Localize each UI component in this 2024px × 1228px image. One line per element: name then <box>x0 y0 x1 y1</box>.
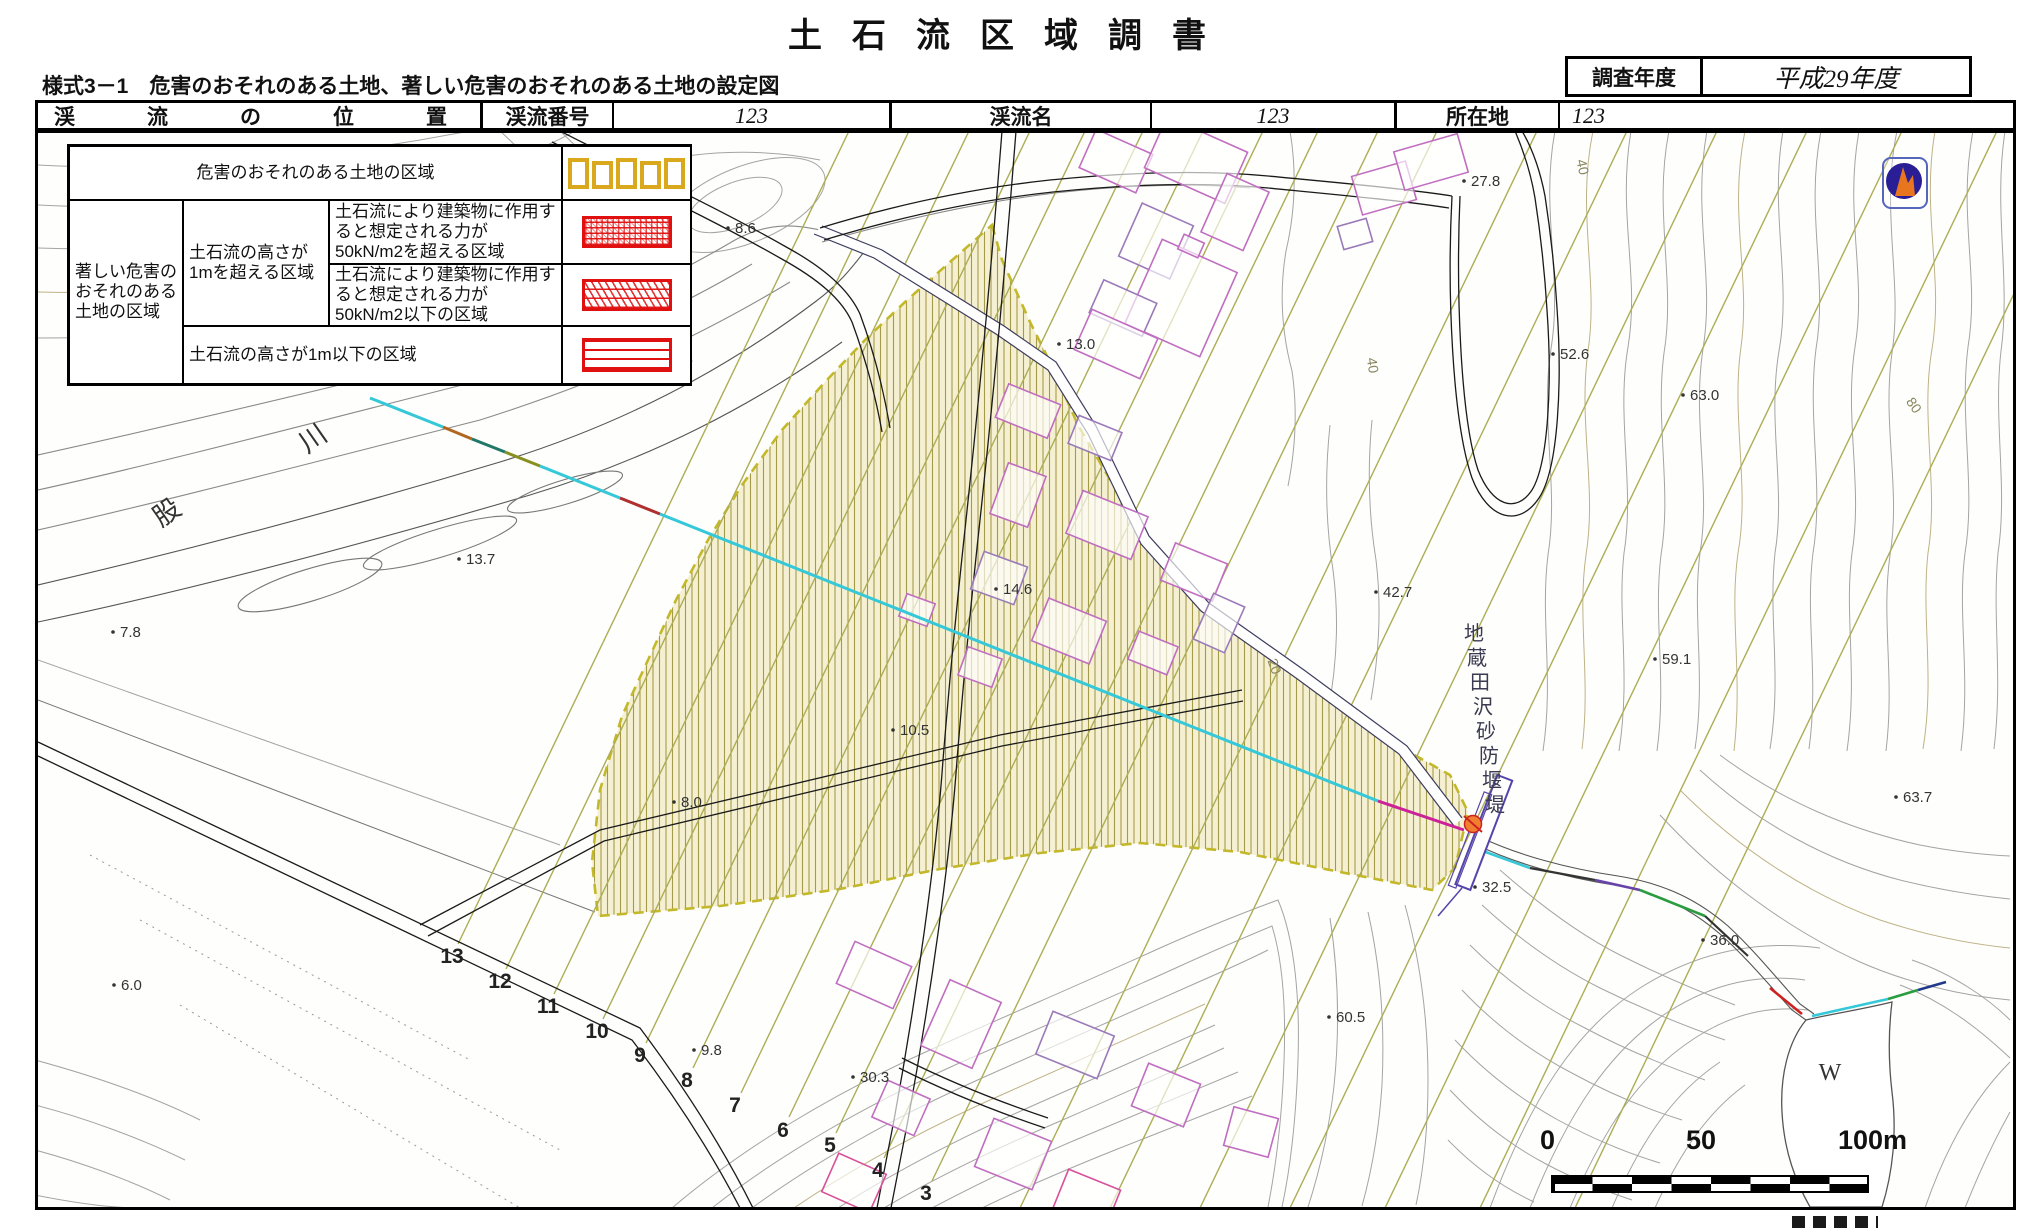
section-number-label: 8 <box>681 1069 693 1092</box>
scale-label-50: 50 <box>1686 1125 1716 1156</box>
location-value: 123 <box>1560 103 2013 128</box>
legend-over-50kn-label: 土石流により建築物に作用すると想定される力が50kN/m2を超える区域 <box>329 200 562 264</box>
dam-name-label: 砂 <box>1476 720 1496 743</box>
legend-over-1m-label: 土石流の高さが1mを超える区域 <box>183 200 329 326</box>
section-number-label: 6 <box>777 1119 789 1142</box>
legend-under-1m-swatch <box>562 326 691 384</box>
spot-elevation-label: 60.5 <box>1336 1009 1365 1026</box>
form-note: 様式3－1 危害のおそれのある土地、著しい危害のおそれのある土地の設定図 <box>42 70 779 100</box>
north-arrow-icon <box>1882 157 1928 209</box>
section-number-label: 9 <box>634 1044 646 1067</box>
survey-year-value: 平成29年度 <box>1703 59 1969 94</box>
spot-elevation-label: 32.5 <box>1482 879 1511 896</box>
clipped-footer-fragment <box>1792 1216 1878 1228</box>
legend-severe-hazard-label: 著しい危害のおそれのある土地の区域 <box>69 200 183 384</box>
section-number-label: 4 <box>872 1159 884 1182</box>
page-title: 土石流区域調書 <box>0 8 2024 57</box>
stream-no-label: 渓流番号 <box>483 103 614 128</box>
river-name-label: 川 <box>293 419 332 459</box>
pond <box>1782 982 1946 1207</box>
stream-position-label: 渓流の位置 <box>38 103 483 128</box>
spot-elevation-label: 36.0 <box>1710 932 1739 949</box>
outlet-stream <box>1477 838 1814 1020</box>
spot-elevation-label: 9.8 <box>701 1042 722 1059</box>
stream-name-value: 123 <box>1152 103 1397 128</box>
spot-elevation-label: 7.8 <box>120 624 141 641</box>
dam-name-label: 堤 <box>1485 794 1505 817</box>
spot-elevation-label: 8.0 <box>681 794 702 811</box>
contour-elevation-label: 80 <box>1903 394 1925 416</box>
dam-name-label: 田 <box>1470 672 1490 694</box>
section-number-label: 13 <box>440 945 463 968</box>
section-number-label: 7 <box>729 1094 741 1117</box>
survey-year-label: 調査年度 <box>1568 59 1703 94</box>
legend-under-1m-label: 土石流の高さが1m以下の区域 <box>183 326 562 384</box>
dam-name-label: 防 <box>1479 745 1499 768</box>
yellow-hatch-swatch-icon <box>568 158 685 189</box>
legend-over-50kn-swatch <box>562 200 691 264</box>
stream-info-table: 渓流の位置 渓流番号 123 渓流名 123 所在地 123 <box>35 100 2016 131</box>
survey-year-box: 調査年度 平成29年度 <box>1565 56 1972 97</box>
section-number-label: 10 <box>585 1020 608 1043</box>
section-number-label: 11 <box>537 995 560 1018</box>
spot-elevation-label: 30.3 <box>860 1069 889 1086</box>
dam-name-label: 蔵 <box>1467 647 1487 670</box>
red-diagonal-swatch-icon <box>582 279 672 311</box>
spot-elevation-label: 13.0 <box>1066 336 1095 353</box>
red-horizontal-swatch-icon <box>582 338 672 372</box>
contour-elevation-label: 40 <box>1364 356 1382 374</box>
dam-name-label: 堰 <box>1482 769 1502 792</box>
section-number-label: 5 <box>824 1134 836 1157</box>
section-number-label: 3 <box>920 1182 932 1205</box>
legend-hazard-label: 危害のおそれのある土地の区域 <box>69 146 562 200</box>
spot-elevation-label: 8.6 <box>735 220 756 237</box>
legend-under-50kn-label: 土石流により建築物に作用すると想定される力が50kN/m2以下の区域 <box>329 264 562 326</box>
dam-name-label: 地 <box>1464 622 1484 645</box>
spot-elevation-label: 59.1 <box>1662 651 1691 668</box>
spot-elevation-label: 52.6 <box>1560 346 1589 363</box>
spot-elevation-label: 27.8 <box>1471 173 1500 190</box>
red-crosshatch-swatch-icon <box>582 216 672 248</box>
scale-label-100: 100m <box>1838 1125 1907 1156</box>
scale-label-0: 0 <box>1540 1125 1555 1156</box>
location-label: 所在地 <box>1397 103 1560 128</box>
legend-table: 危害のおそれのある土地の区域 著しい危害のおそれのある土地の区域 土石流の高さが… <box>67 144 692 386</box>
spot-elevation-label: 10.5 <box>900 722 929 739</box>
legend-hazard-swatch <box>562 146 691 200</box>
spot-elevation-label: 63.7 <box>1903 789 1932 806</box>
scale-bar <box>1551 1175 1869 1193</box>
legend-under-50kn-swatch <box>562 264 691 326</box>
spot-elevation-label: 63.0 <box>1690 387 1719 404</box>
spot-elevation-label: 13.7 <box>466 551 495 568</box>
pond-label: W <box>1819 1060 1842 1086</box>
river-name-label: 股 <box>147 493 186 533</box>
spot-elevation-label: 6.0 <box>121 977 142 994</box>
section-number-label: 12 <box>488 970 511 993</box>
stream-no-value: 123 <box>614 103 892 128</box>
stream-name-label: 渓流名 <box>892 103 1152 128</box>
spot-elevation-label: 42.7 <box>1383 584 1412 601</box>
map-area: 8.627.813.052.663.013.77.842.759.163.78.… <box>35 130 2016 1210</box>
spot-elevation-label: 14.6 <box>1003 581 1032 598</box>
contour-elevation-label: 40 <box>1573 158 1592 177</box>
dam-name-label: 沢 <box>1473 696 1493 719</box>
